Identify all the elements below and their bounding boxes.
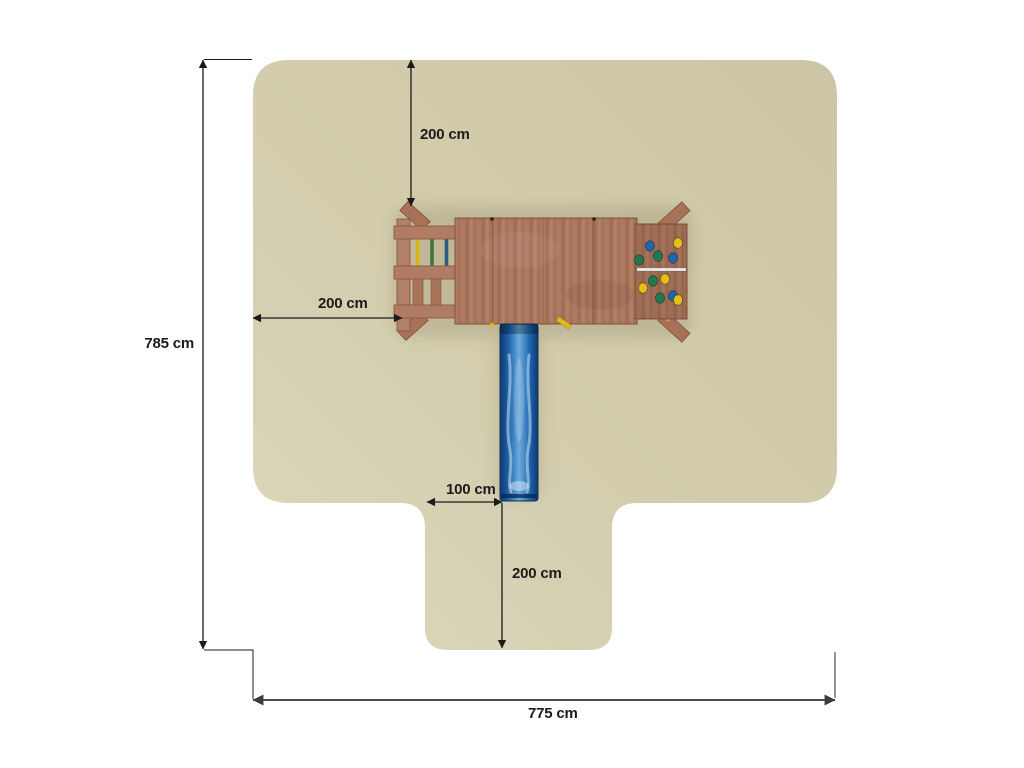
- ladder-section: [394, 219, 457, 331]
- deck-bolt: [592, 217, 596, 221]
- climbing-hold: [648, 276, 657, 286]
- extension-line-bottom-left: [204, 650, 253, 699]
- climbing-hold: [660, 274, 669, 284]
- deck-bolt: [490, 217, 494, 221]
- slide: [500, 324, 538, 501]
- climbing-hold: [638, 283, 647, 293]
- climbing-wall-bar: [637, 268, 686, 271]
- ladder-beam-middle: [394, 266, 457, 279]
- dimension-label-total-width: 775 cm: [528, 706, 578, 723]
- safety-zone: [253, 60, 837, 650]
- platform-deck: [455, 217, 637, 324]
- plan-view-drawing: [0, 0, 1024, 768]
- grab-handle: [490, 323, 494, 327]
- climbing-hold: [645, 241, 654, 251]
- dimension-label-slide-exit: 200 cm: [512, 566, 562, 583]
- dimension-label-total-height: 785 cm: [134, 336, 194, 353]
- climbing-hold: [634, 255, 643, 265]
- diagram-canvas: 785 cm 200 cm 200 cm 100 cm 200 cm 775 c…: [0, 0, 1024, 768]
- dimension-label-top-clearance: 200 cm: [420, 127, 470, 144]
- ladder-slat: [431, 277, 441, 307]
- ladder-slat: [413, 277, 423, 307]
- climbing-hold: [668, 253, 677, 263]
- climbing-hold: [653, 251, 662, 261]
- ladder-beam-top: [394, 226, 457, 239]
- dimension-label-slide-offset: 100 cm: [446, 482, 496, 499]
- climbing-wall: [634, 224, 687, 319]
- dimension-label-left-clearance: 200 cm: [318, 296, 368, 313]
- climbing-hold: [673, 295, 682, 305]
- climbing-hold: [655, 293, 664, 303]
- ladder-beam-bottom: [394, 305, 457, 318]
- climbing-hold: [673, 238, 682, 248]
